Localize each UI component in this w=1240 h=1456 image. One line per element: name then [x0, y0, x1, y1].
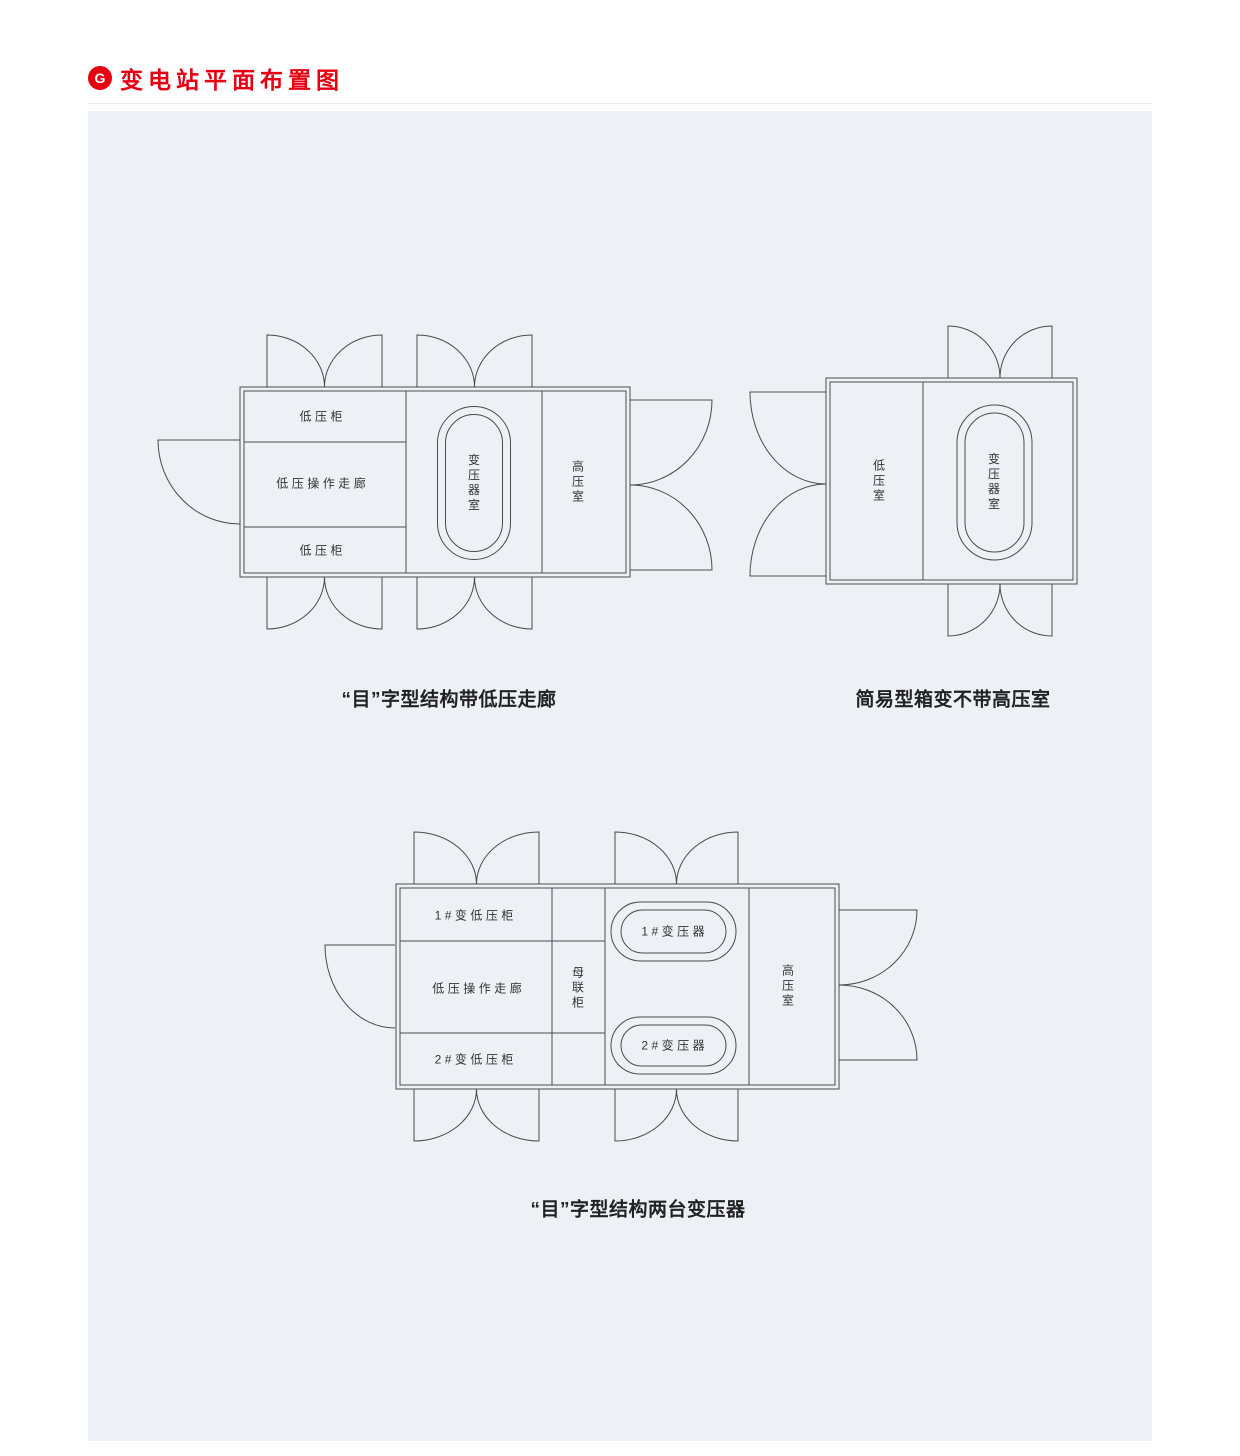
page: G 变电站平面布置图	[0, 0, 1240, 1456]
room-label-transformer-room: 变压器室	[468, 453, 480, 513]
diagram-a-doors	[158, 335, 712, 629]
room-label-hv-room: 高压室	[572, 460, 584, 505]
diagram-b-caption: 简易型箱变不带高压室	[855, 685, 1050, 712]
room-label-lv-corridor: 低压操作走廊	[429, 980, 526, 997]
label-transformer-1: 1#变压器	[638, 923, 708, 940]
floorplan-linework	[88, 111, 1152, 1441]
section-header: G 变电站平面布置图	[88, 64, 344, 92]
diagram-panel: 低压柜 低压操作走廊 低压柜 变压器室 高压室 “目”字型结构带低压走廊 低压室…	[88, 111, 1152, 1441]
room-label-transformer-room: 变压器室	[988, 452, 1000, 512]
room-label-lv-cabinet-top: 低压柜	[296, 408, 346, 425]
room-label-lv-room: 低压室	[873, 459, 885, 504]
diagram-b-doors	[750, 326, 1052, 636]
header-divider	[88, 103, 1152, 104]
diagram-a-caption: “目”字型结构带低压走廊	[341, 685, 556, 712]
room-label-bus-tie-cabinet: 母联柜	[572, 966, 584, 1011]
room-label-lv-cabinet-bottom: 低压柜	[296, 542, 346, 559]
room-label-hv-room: 高压室	[782, 964, 794, 1009]
brand-icon: G	[88, 66, 112, 90]
diagram-c-caption: “目”字型结构两台变压器	[530, 1195, 745, 1222]
page-title: 变电站平面布置图	[120, 61, 344, 95]
room-label-lv-corridor: 低压操作走廊	[273, 475, 370, 492]
diagram-b-walls	[826, 378, 1077, 584]
diagram-c-doors	[325, 832, 917, 1141]
room-label-t2-lv-cabinet: 2#变低压柜	[431, 1051, 517, 1068]
label-transformer-2: 2#变压器	[638, 1037, 708, 1054]
room-label-t1-lv-cabinet: 1#变低压柜	[431, 907, 517, 924]
